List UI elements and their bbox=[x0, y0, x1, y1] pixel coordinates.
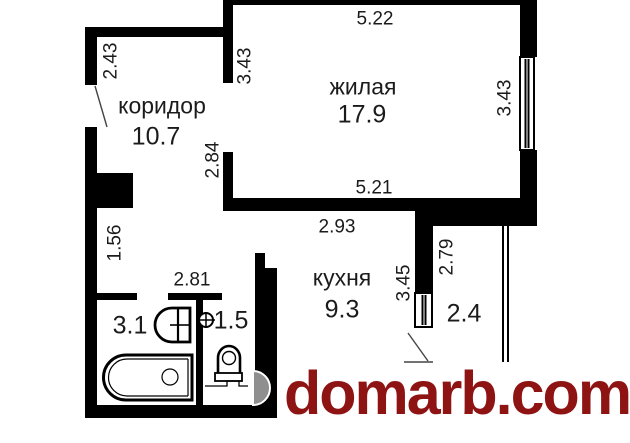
floor-plan: коридор 10.7 жилая 17.9 кухня 9.3 3.1 1.… bbox=[0, 0, 630, 443]
kitchen-window-glass bbox=[421, 295, 426, 325]
entrance-door-line bbox=[95, 86, 107, 127]
balcony-door-line bbox=[408, 333, 428, 361]
living-label: жилая bbox=[330, 76, 397, 99]
living-window bbox=[519, 56, 535, 151]
dim-living-top: 5.22 bbox=[357, 10, 394, 29]
kitchen-window bbox=[414, 292, 433, 328]
toilet bbox=[215, 346, 242, 381]
bathtub bbox=[104, 355, 193, 400]
kitchen-label: кухня bbox=[313, 267, 371, 290]
dim-kitchen-right: 3.45 bbox=[395, 265, 414, 302]
corridor-label: коридор bbox=[118, 95, 206, 118]
dim-living-bottom: 5.21 bbox=[356, 179, 393, 198]
wc-area: 1.5 bbox=[214, 309, 249, 334]
bathroom-area: 3.1 bbox=[113, 314, 148, 339]
living-window-glass bbox=[525, 59, 530, 148]
dim-living-left: 3.43 bbox=[236, 48, 255, 85]
dim-kitchen-top: 2.93 bbox=[319, 218, 356, 237]
balcony-area: 2.4 bbox=[447, 302, 482, 327]
site-watermark: domarb.com bbox=[284, 363, 630, 424]
dim-hall-height: 1.56 bbox=[106, 225, 125, 262]
corridor-area: 10.7 bbox=[132, 125, 181, 150]
dim-corridor-lower: 2.84 bbox=[204, 142, 223, 179]
towel-rail-symbol bbox=[198, 312, 215, 328]
dim-bath-width: 2.81 bbox=[174, 271, 211, 290]
dim-living-right: 3.43 bbox=[496, 80, 515, 117]
dim-corridor-top: 2.43 bbox=[102, 43, 121, 80]
kitchen-area: 9.3 bbox=[325, 298, 360, 323]
dim-balcony-wall: 2.79 bbox=[438, 239, 457, 276]
washbasin bbox=[155, 308, 190, 342]
living-area: 17.9 bbox=[338, 103, 387, 128]
kitchen-door-arc bbox=[253, 371, 270, 405]
